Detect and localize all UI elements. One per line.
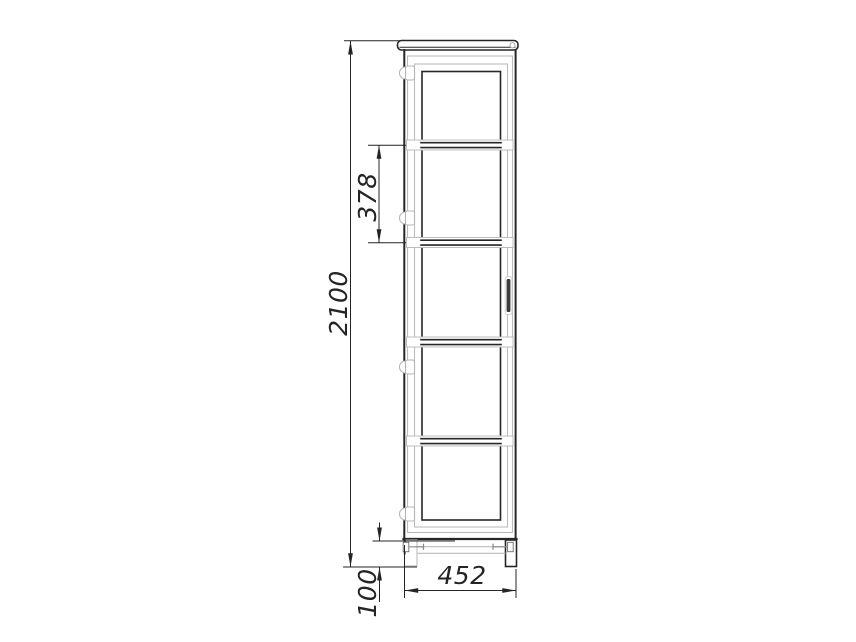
- dimension-overall-height: 2100: [324, 41, 417, 567]
- arrowhead-left: [405, 588, 419, 593]
- arrowhead-right: [502, 588, 516, 593]
- cornice: [398, 41, 519, 51]
- cornice-end-cap: [510, 43, 515, 48]
- muntin-bar-1: [407, 140, 514, 150]
- arrowhead-up: [348, 41, 353, 55]
- cabinet-front-view: [398, 41, 519, 567]
- arrowhead-down: [348, 553, 353, 567]
- hinge-1: [400, 66, 415, 80]
- muntin-bar-2: [407, 238, 514, 248]
- cabinet-technical-drawing: 2100 378 100 452: [0, 0, 856, 642]
- arrowhead-down: [377, 528, 382, 542]
- dim-label-plinth-height: 100: [353, 568, 382, 617]
- hinge-2: [400, 211, 415, 225]
- leg-adjuster-right: [493, 542, 513, 551]
- hinge-3: [400, 360, 415, 374]
- arrowhead-down: [377, 229, 382, 243]
- arrowhead-up: [377, 145, 382, 159]
- drawing-canvas: 2100 378 100 452: [0, 0, 856, 642]
- hinge-4: [400, 507, 415, 521]
- dim-label-overall-height: 2100: [324, 270, 353, 336]
- muntin-bar-4: [407, 436, 514, 446]
- glass-panel-opening: [422, 72, 501, 521]
- dim-label-shelf-spacing: 378: [353, 172, 382, 221]
- muntin-bar-3: [407, 337, 514, 347]
- dim-label-overall-width: 452: [437, 561, 486, 590]
- dimension-shelf-spacing: 378: [353, 145, 406, 243]
- door-handle[interactable]: [505, 277, 512, 315]
